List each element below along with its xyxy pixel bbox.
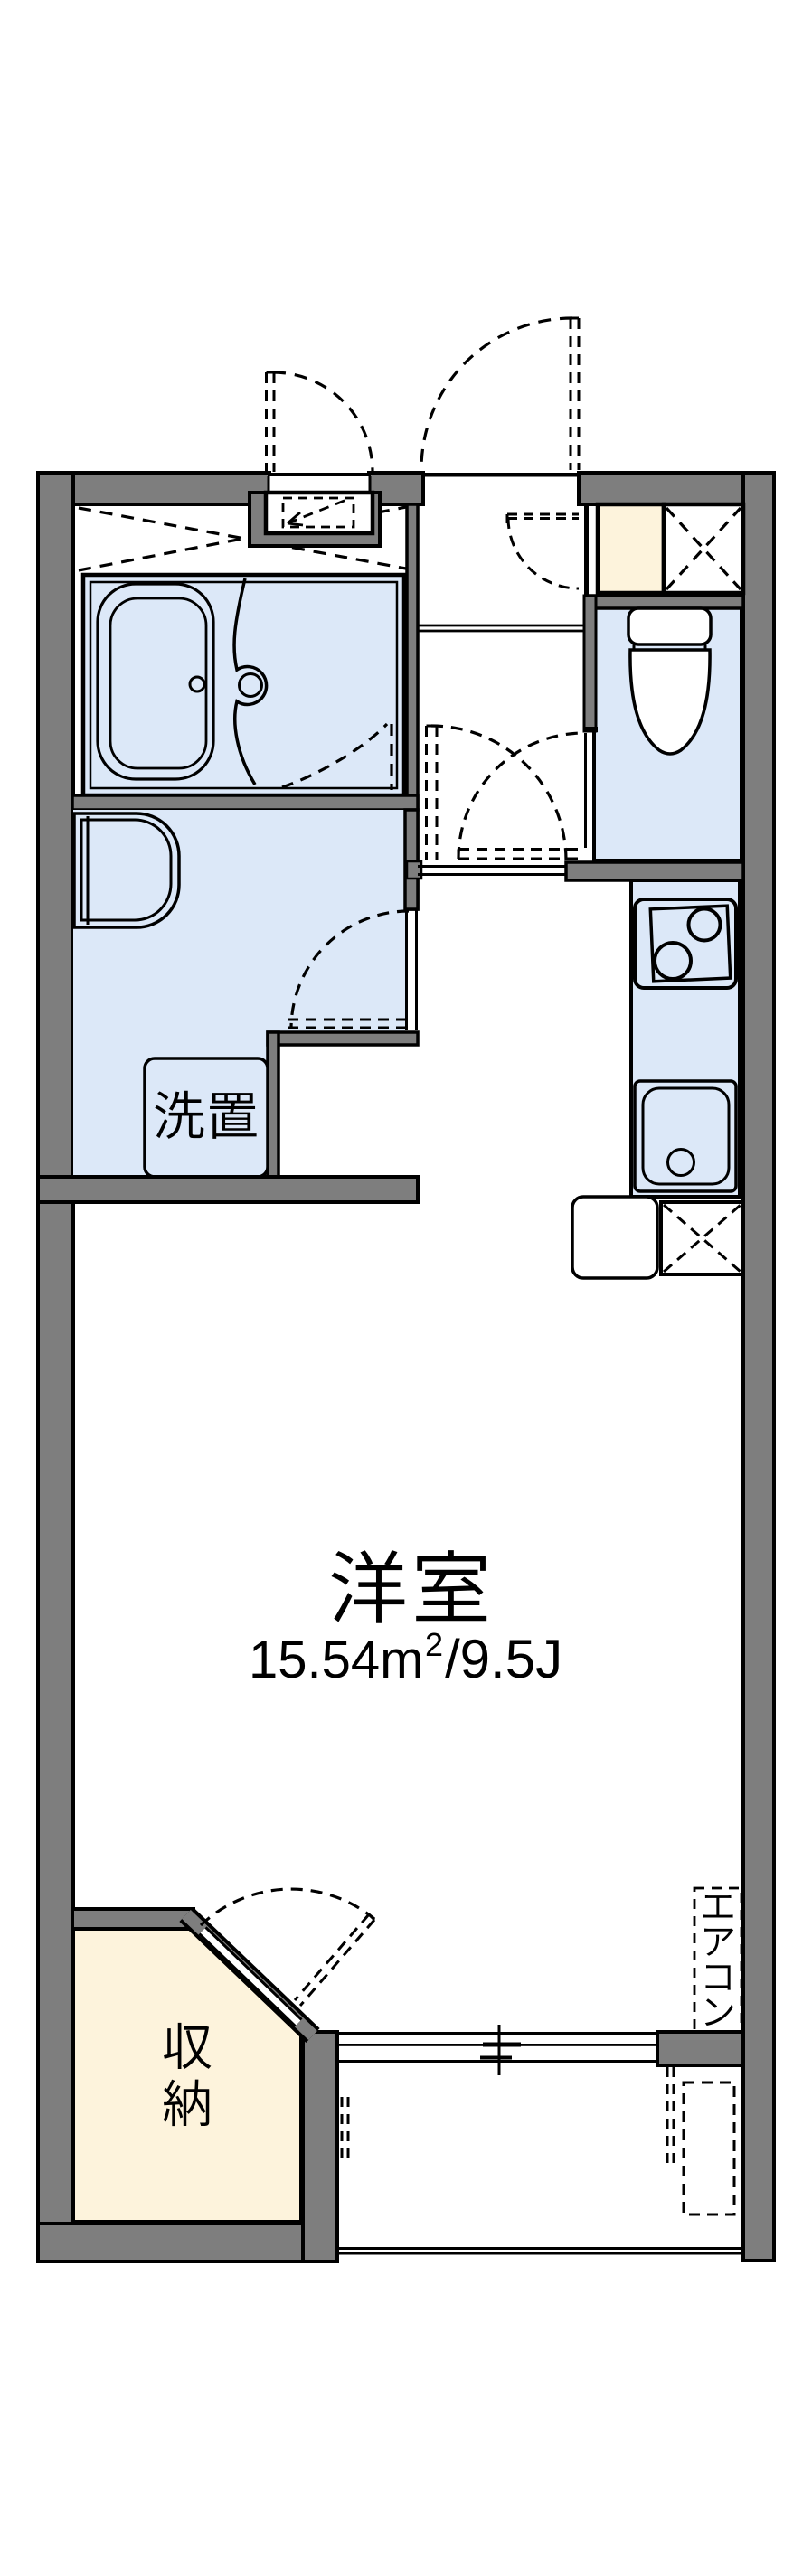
svg-text:2: 2 [425, 1626, 443, 1663]
svg-text:/9.5J: /9.5J [445, 1629, 562, 1689]
svg-text:15.54m: 15.54m [249, 1631, 423, 1689]
